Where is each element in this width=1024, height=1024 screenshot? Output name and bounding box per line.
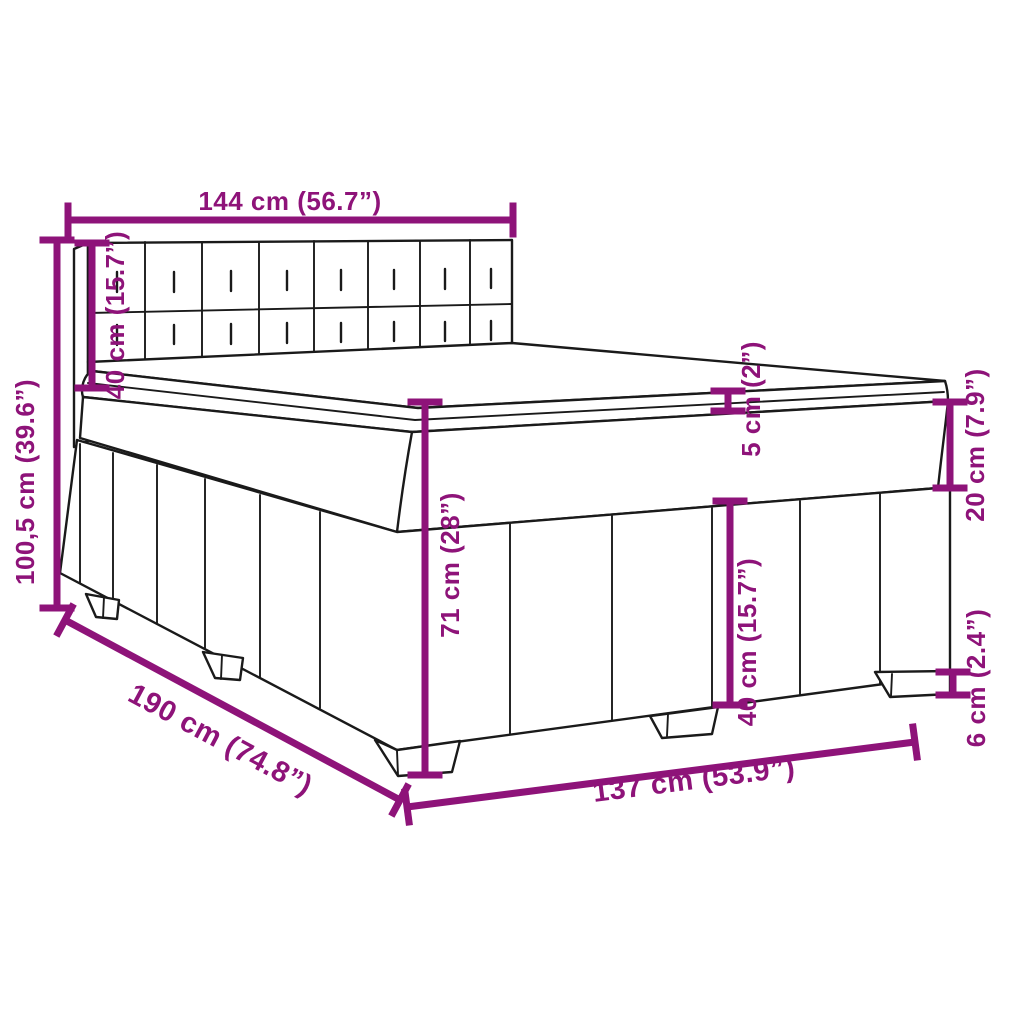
dim-headboard-height-label: 40 cm (15.7”) (100, 231, 130, 399)
leg (203, 652, 243, 680)
bed-dimension-diagram: 144 cm (56.7”) 100,5 cm (39.6”) 40 cm (1… (0, 0, 1024, 1024)
dim-bed-width-label: 137 cm (53.9”) (591, 751, 797, 809)
dim-headboard-width: 144 cm (56.7”) (68, 186, 513, 234)
dim-platform-height-label: 71 cm (28”) (435, 492, 465, 638)
dim-mattress-box-label: 20 cm (7.9”) (960, 368, 990, 521)
dim-leg-height-label: 6 cm (2.4”) (961, 609, 991, 747)
dim-headboard-width-label: 144 cm (56.7”) (198, 186, 381, 216)
dim-total-height-label: 100,5 cm (39.6”) (10, 379, 40, 585)
dim-bed-width: 137 cm (53.9”) (405, 727, 917, 822)
dim-mattress-top-label: 5 cm (2”) (736, 341, 766, 457)
dim-skirt-height-label: 40 cm (15.7”) (732, 558, 762, 726)
bed-drawing (60, 240, 950, 776)
